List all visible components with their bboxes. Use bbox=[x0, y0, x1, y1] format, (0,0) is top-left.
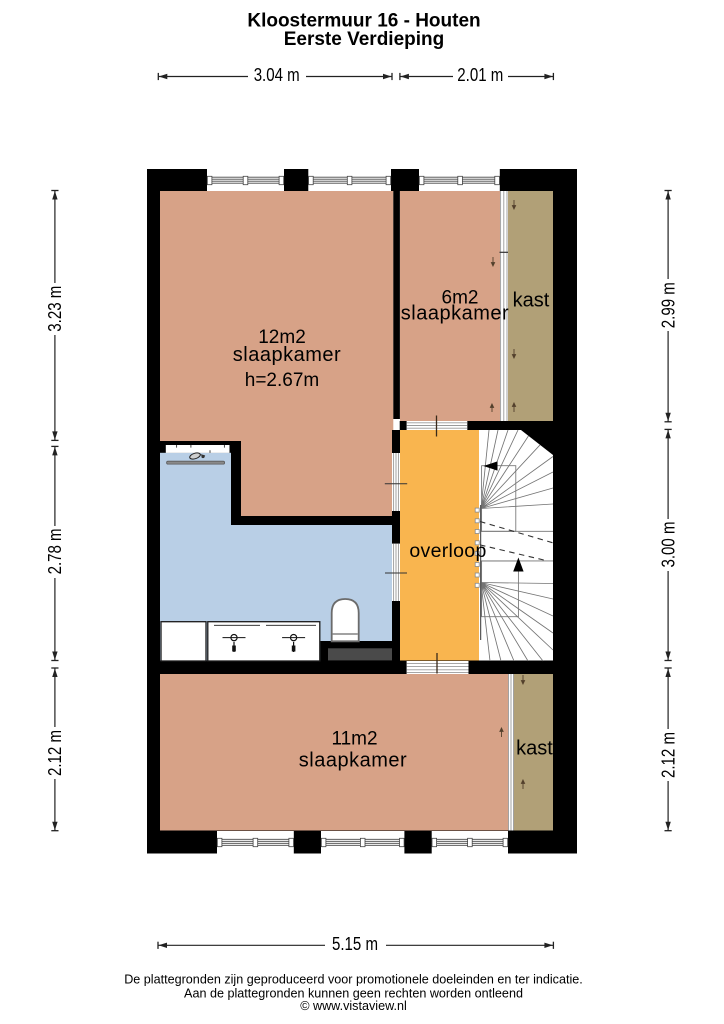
svg-text:2.12 m: 2.12 m bbox=[45, 730, 65, 776]
svg-text:3.00 m: 3.00 m bbox=[658, 522, 678, 568]
svg-text:3.23 m: 3.23 m bbox=[45, 286, 65, 332]
svg-text:2.01 m: 2.01 m bbox=[457, 65, 503, 85]
svg-text:3.04 m: 3.04 m bbox=[254, 65, 300, 85]
svg-text:kast: kast bbox=[513, 290, 550, 312]
svg-text:h=2.67m: h=2.67m bbox=[245, 370, 319, 391]
svg-text:Eerste Verdieping: Eerste Verdieping bbox=[284, 29, 445, 50]
svg-text:De plattegronden zijn geproduc: De plattegronden zijn geproduceerd voor … bbox=[124, 972, 583, 986]
svg-text:2.99 m: 2.99 m bbox=[658, 282, 678, 328]
svg-text:slaapkamer: slaapkamer bbox=[299, 750, 407, 772]
svg-text:© www.vistaview.nl: © www.vistaview.nl bbox=[300, 999, 407, 1013]
svg-text:2.12 m: 2.12 m bbox=[658, 732, 678, 778]
svg-text:slaapkamer: slaapkamer bbox=[401, 303, 509, 325]
svg-text:kast: kast bbox=[516, 738, 553, 760]
svg-text:overloop: overloop bbox=[409, 540, 486, 562]
svg-text:2.78 m: 2.78 m bbox=[45, 528, 65, 574]
svg-text:5.15 m: 5.15 m bbox=[332, 934, 378, 954]
svg-text:11m2: 11m2 bbox=[331, 729, 377, 750]
svg-text:slaapkamer: slaapkamer bbox=[233, 344, 341, 366]
